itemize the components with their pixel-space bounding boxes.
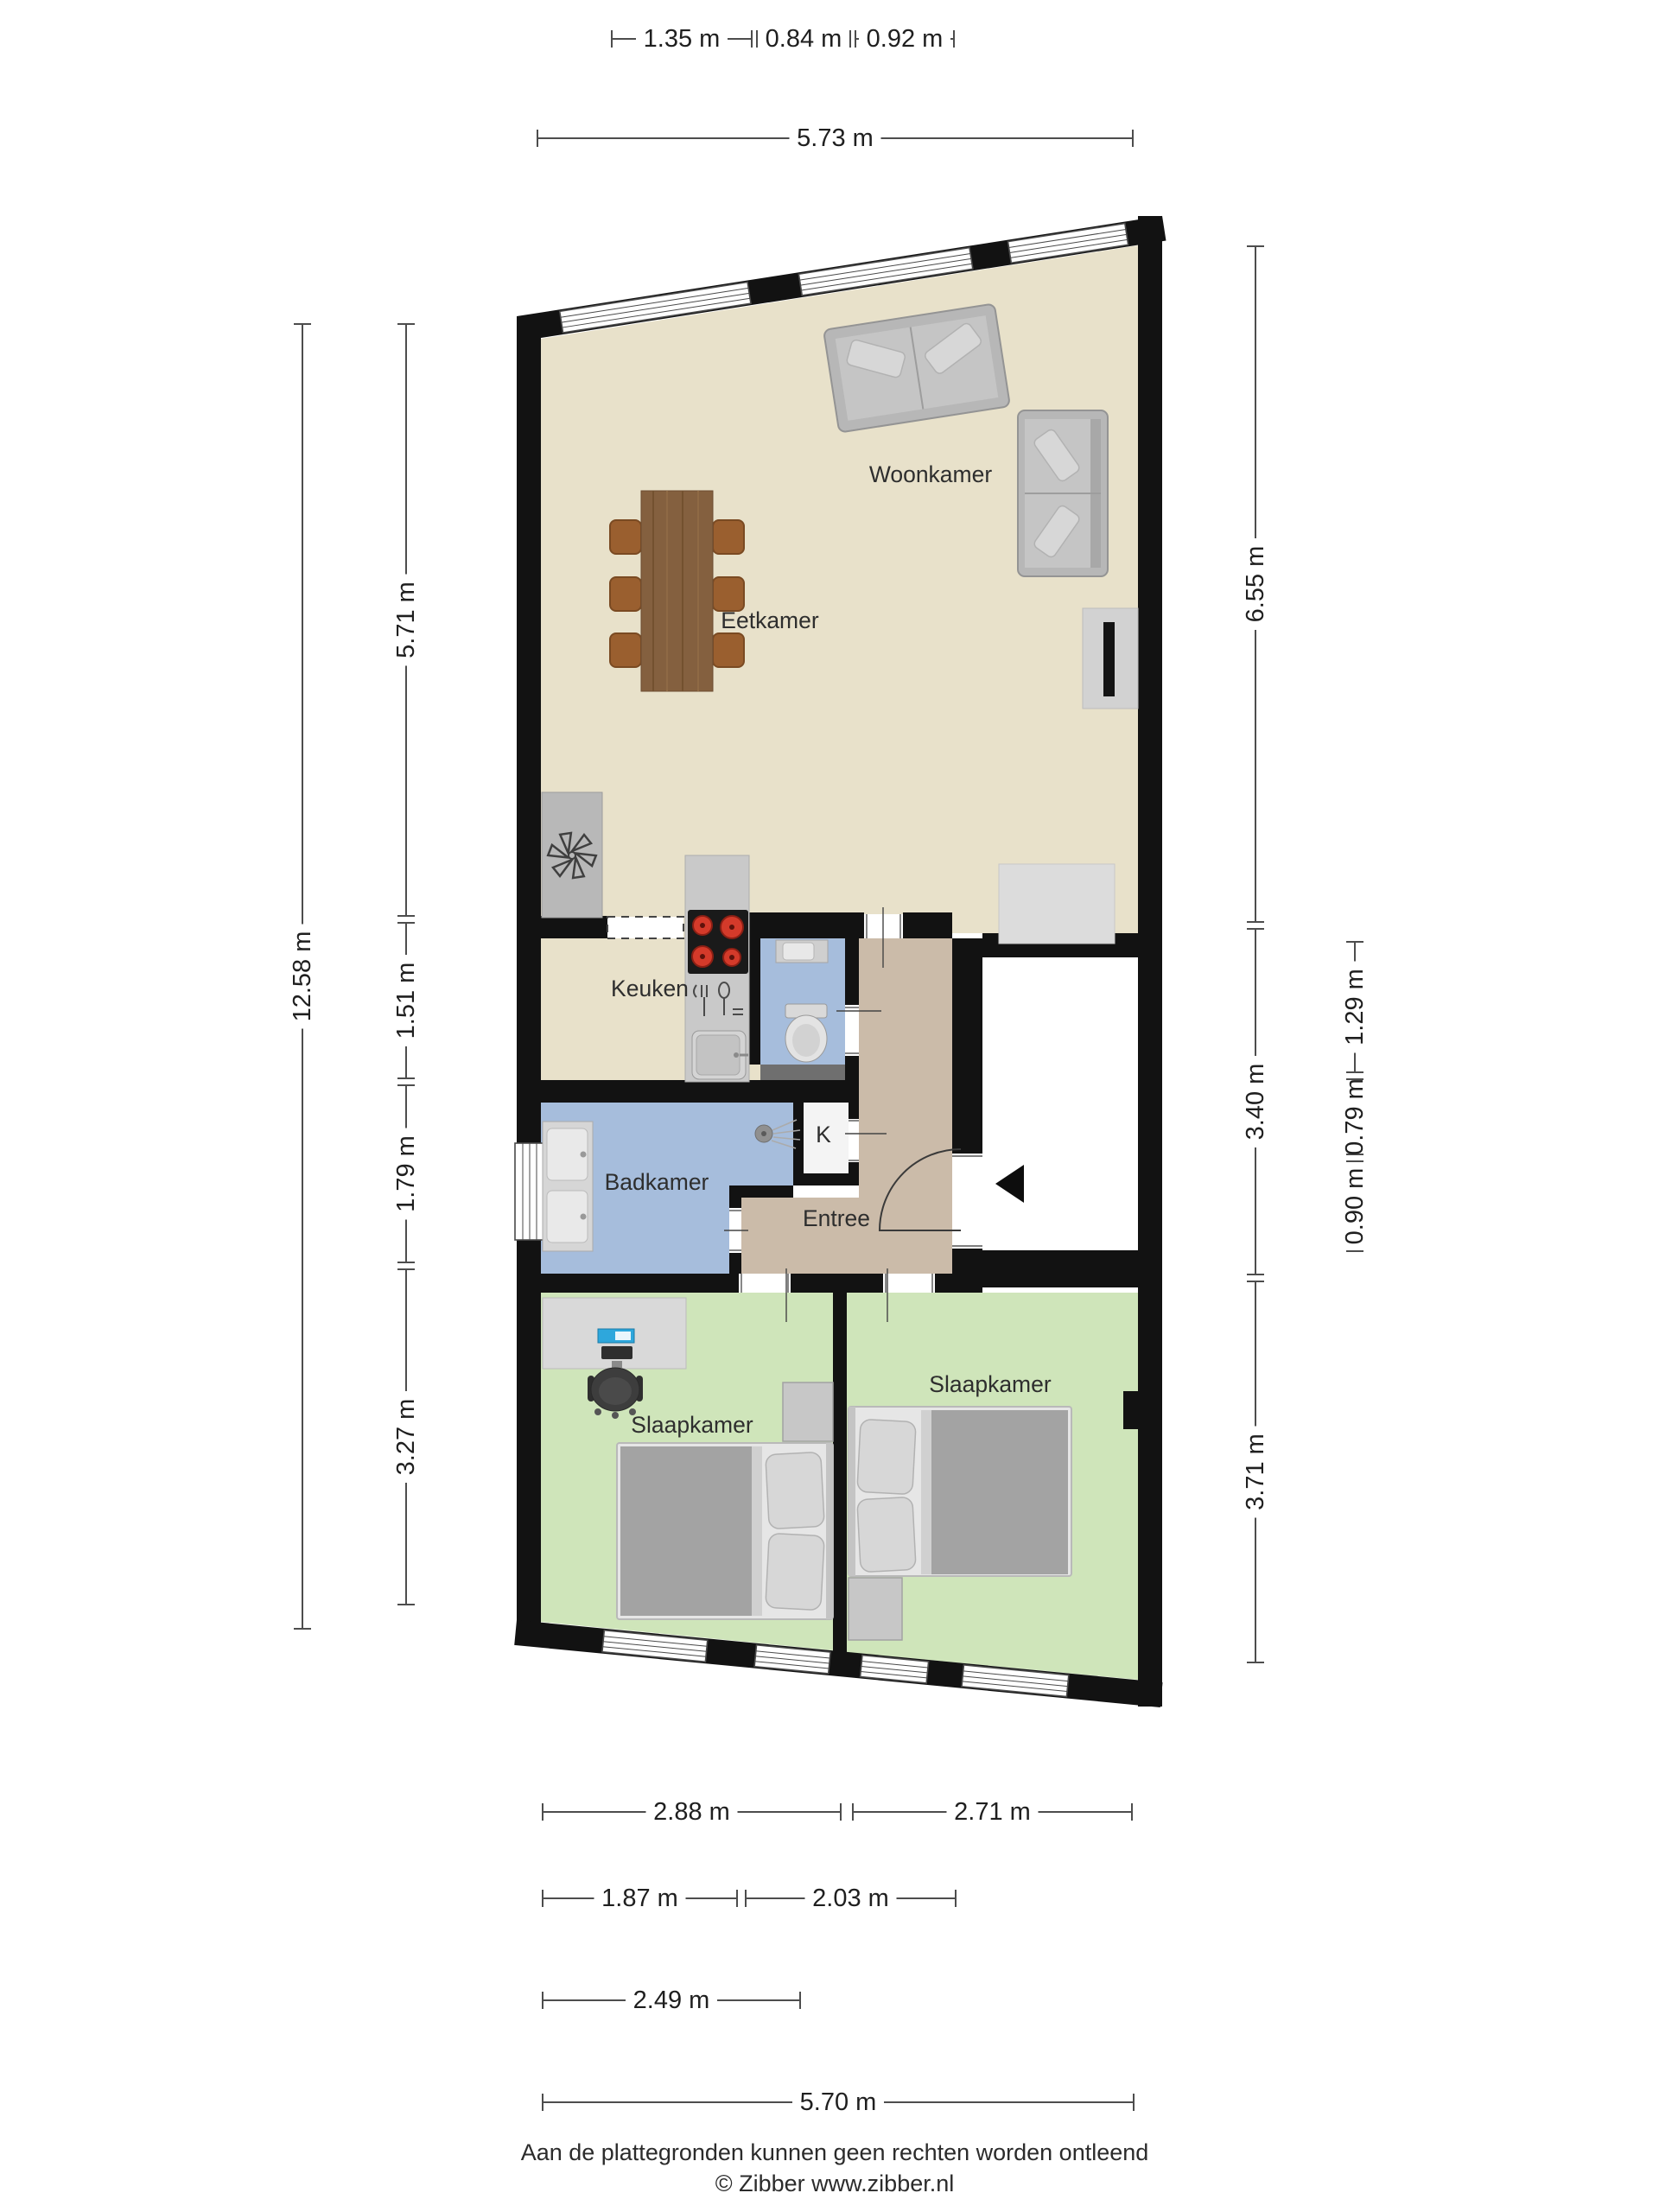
svg-text:2.49 m: 2.49 m [633, 1986, 710, 2014]
dining-table [641, 491, 713, 691]
svg-text:2.03 m: 2.03 m [812, 1885, 889, 1912]
dimension-0.92m: 0.92 m [855, 25, 954, 53]
dimension-0.84m: 0.84 m [757, 25, 850, 53]
bedroom-divider-wall [833, 1293, 847, 1652]
svg-text:1.29 m: 1.29 m [1341, 969, 1369, 1046]
dimension-1.35m: 1.35 m [612, 25, 752, 53]
bed-2 [849, 1407, 1071, 1576]
room-label-keuken: Keuken [611, 976, 689, 1001]
footer: Aan de plattegronden kunnen geen rechten… [521, 2139, 1149, 2196]
dimension-3.27m: 3.27 m [392, 1269, 420, 1605]
dimension-2.03m: 2.03 m [746, 1885, 956, 1912]
svg-text:1.79 m: 1.79 m [392, 1135, 420, 1212]
dimension-2.88m: 2.88 m [543, 1798, 841, 1826]
window-icon [515, 1143, 543, 1240]
svg-text:3.27 m: 3.27 m [392, 1399, 420, 1476]
wardrobe-2 [849, 1578, 902, 1640]
room-label-slaapkamer-2: Slaapkamer [929, 1371, 1052, 1397]
svg-text:2.88 m: 2.88 m [653, 1798, 730, 1826]
floor-plan: WoonkamerEetkamerKeukenBadkamerKEntreeSl… [0, 0, 1659, 2212]
svg-text:5.73 m: 5.73 m [797, 124, 874, 152]
tv-area [1083, 608, 1138, 709]
desk [543, 1298, 686, 1369]
dimension-1.87m: 1.87 m [543, 1885, 737, 1912]
tv-icon [1103, 622, 1115, 696]
svg-text:3.71 m: 3.71 m [1242, 1433, 1269, 1510]
room-label-eetkamer: Eetkamer [721, 607, 819, 633]
dimension-2.71m: 2.71 m [853, 1798, 1132, 1826]
dimension-5.70m: 5.70 m [543, 2088, 1134, 2116]
room-label-woonkamer: Woonkamer [869, 461, 993, 487]
keyboard-icon [601, 1346, 632, 1359]
room-label-slaapkamer-1: Slaapkamer [631, 1412, 753, 1438]
bed-1 [617, 1443, 833, 1619]
dimension-5.73m: 5.73 m [537, 124, 1133, 152]
stove-icon [688, 910, 748, 974]
dimension-0.90m: 0.90 m [1341, 1161, 1369, 1251]
sofa-right [1018, 410, 1108, 576]
wardrobe-1 [783, 1382, 833, 1441]
svg-text:5.71 m: 5.71 m [392, 582, 420, 658]
toilet-niche [760, 1065, 845, 1080]
dimension-1.29m: 1.29 m [1341, 942, 1369, 1072]
room-label-badkamer: Badkamer [605, 1169, 709, 1195]
room-label-entree: Entree [803, 1205, 870, 1231]
toilet-icon [785, 1004, 827, 1062]
dimension-6.55m: 6.55 m [1242, 246, 1269, 922]
svg-text:5.70 m: 5.70 m [800, 2088, 877, 2116]
svg-text:1.87 m: 1.87 m [601, 1885, 678, 1912]
svg-text:0.84 m: 0.84 m [766, 25, 842, 53]
svg-text:0.92 m: 0.92 m [867, 25, 944, 53]
double-washbasin-icon [543, 1122, 593, 1251]
svg-text:0.79 m: 0.79 m [1341, 1078, 1369, 1155]
footer-copyright: © Zibber www.zibber.nl [715, 2171, 955, 2196]
ventilation-unit [542, 792, 602, 918]
dimension-3.40m: 3.40 m [1242, 929, 1269, 1274]
dimension-1.51m: 1.51 m [392, 923, 420, 1078]
dining-set [610, 491, 744, 691]
stairwell-void [982, 957, 1138, 1250]
kitchen-sink-icon [692, 1031, 748, 1079]
svg-text:6.55 m: 6.55 m [1242, 546, 1269, 623]
svg-text:2.71 m: 2.71 m [954, 1798, 1031, 1826]
svg-text:1.51 m: 1.51 m [392, 963, 420, 1039]
svg-text:12.58 m: 12.58 m [289, 931, 316, 1022]
svg-text:3.40 m: 3.40 m [1242, 1064, 1269, 1141]
left-wall [517, 316, 541, 1644]
svg-text:0.90 m: 0.90 m [1341, 1168, 1369, 1245]
room-label-kast: K [816, 1122, 831, 1147]
dimension-1.79m: 1.79 m [392, 1085, 420, 1262]
svg-text:1.35 m: 1.35 m [644, 25, 721, 53]
window-icon [754, 1645, 830, 1674]
kitchen-counter [685, 855, 749, 1082]
duct-niche [1123, 1391, 1138, 1429]
hatch-opening [607, 917, 683, 938]
dimension-0.79m: 0.79 m [1341, 1078, 1369, 1155]
footer-disclaimer: Aan de plattegronden kunnen geen rechten… [521, 2139, 1149, 2165]
floor-mat [999, 864, 1115, 944]
hand-basin-icon [776, 940, 828, 963]
dimension-2.49m: 2.49 m [543, 1986, 800, 2014]
dimension-12.58m: 12.58 m [289, 324, 316, 1629]
dimension-3.71m: 3.71 m [1242, 1281, 1269, 1662]
dimension-5.71m: 5.71 m [392, 324, 420, 916]
right-wall [1138, 216, 1162, 1707]
